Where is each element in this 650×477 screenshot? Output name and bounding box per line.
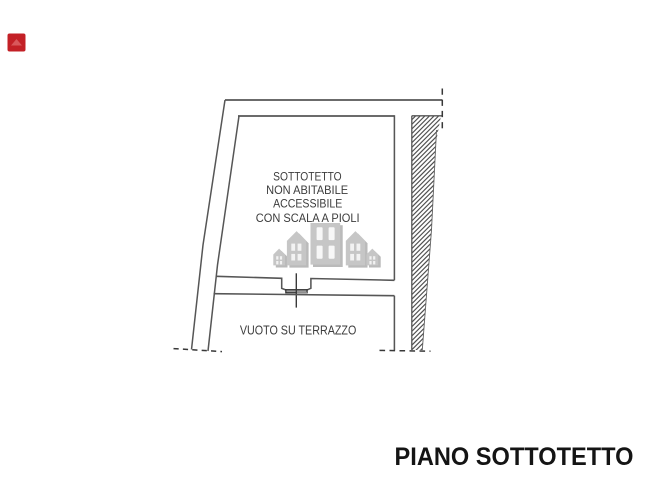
svg-text:NON ABITABILE: NON ABITABILE [266,183,348,197]
svg-text:PIANO SOTTOTETTO: PIANO SOTTOTETTO [395,443,634,471]
svg-text:VUOTO SU TERRAZZO: VUOTO SU TERRAZZO [240,323,356,338]
svg-text:SOTTOTETTO: SOTTOTETTO [273,170,342,184]
svg-text:CON SCALA A PIOLI: CON SCALA A PIOLI [256,211,360,225]
svg-text:ACCESSIBILE: ACCESSIBILE [273,197,342,211]
